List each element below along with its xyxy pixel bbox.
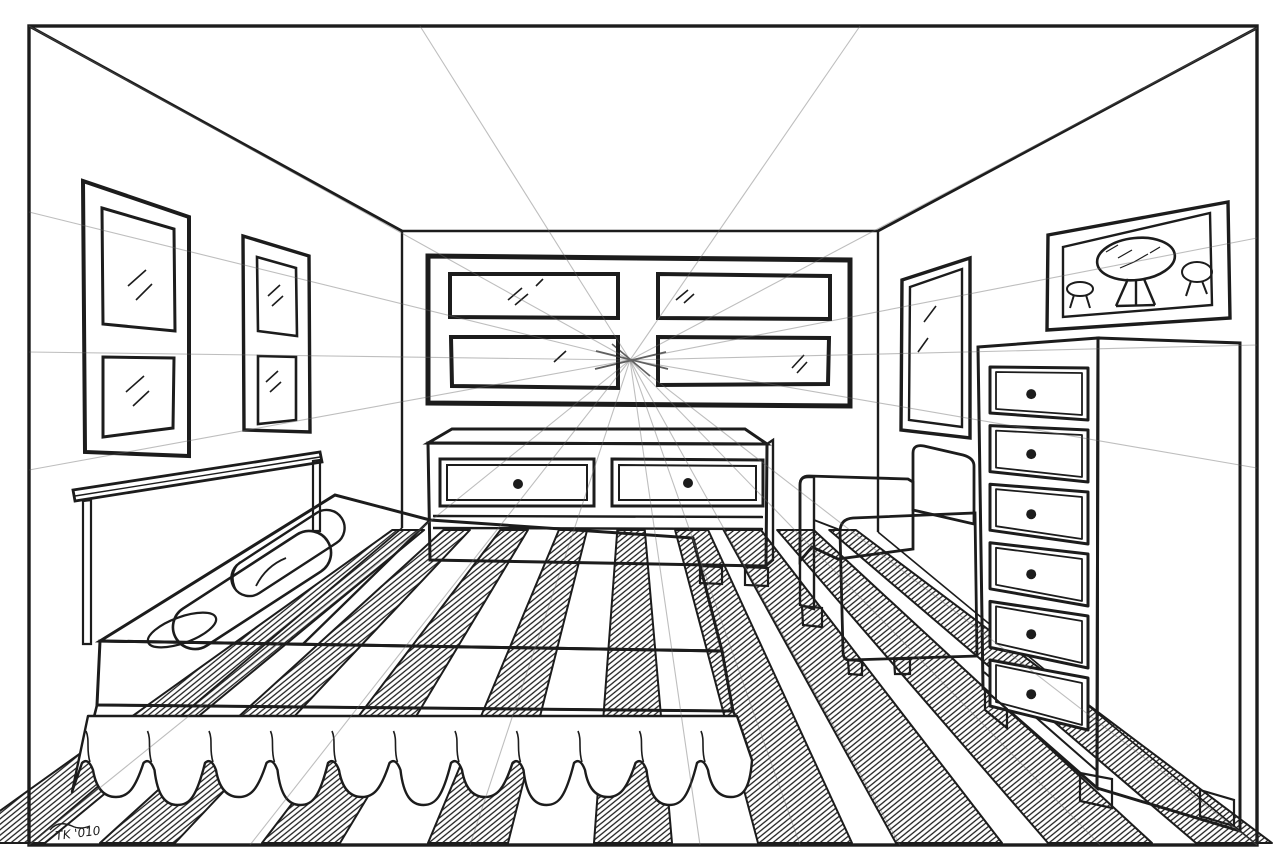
drawer-knob [1026,449,1036,459]
drawer-knob [1026,629,1036,639]
scanned-drawing-page: TK '010 [0,0,1280,868]
drawer-knob [1026,569,1036,579]
drawer-knob [1026,689,1036,699]
dresser-rail-top [433,516,763,517]
bedroom-perspective-drawing: TK '010 [0,0,1280,868]
drawer-knob [683,478,693,488]
drawer-knob [513,479,523,489]
drawer-knob [1026,389,1036,399]
drawer-knob [1026,509,1036,519]
dresser-rail-bottom [433,528,763,529]
